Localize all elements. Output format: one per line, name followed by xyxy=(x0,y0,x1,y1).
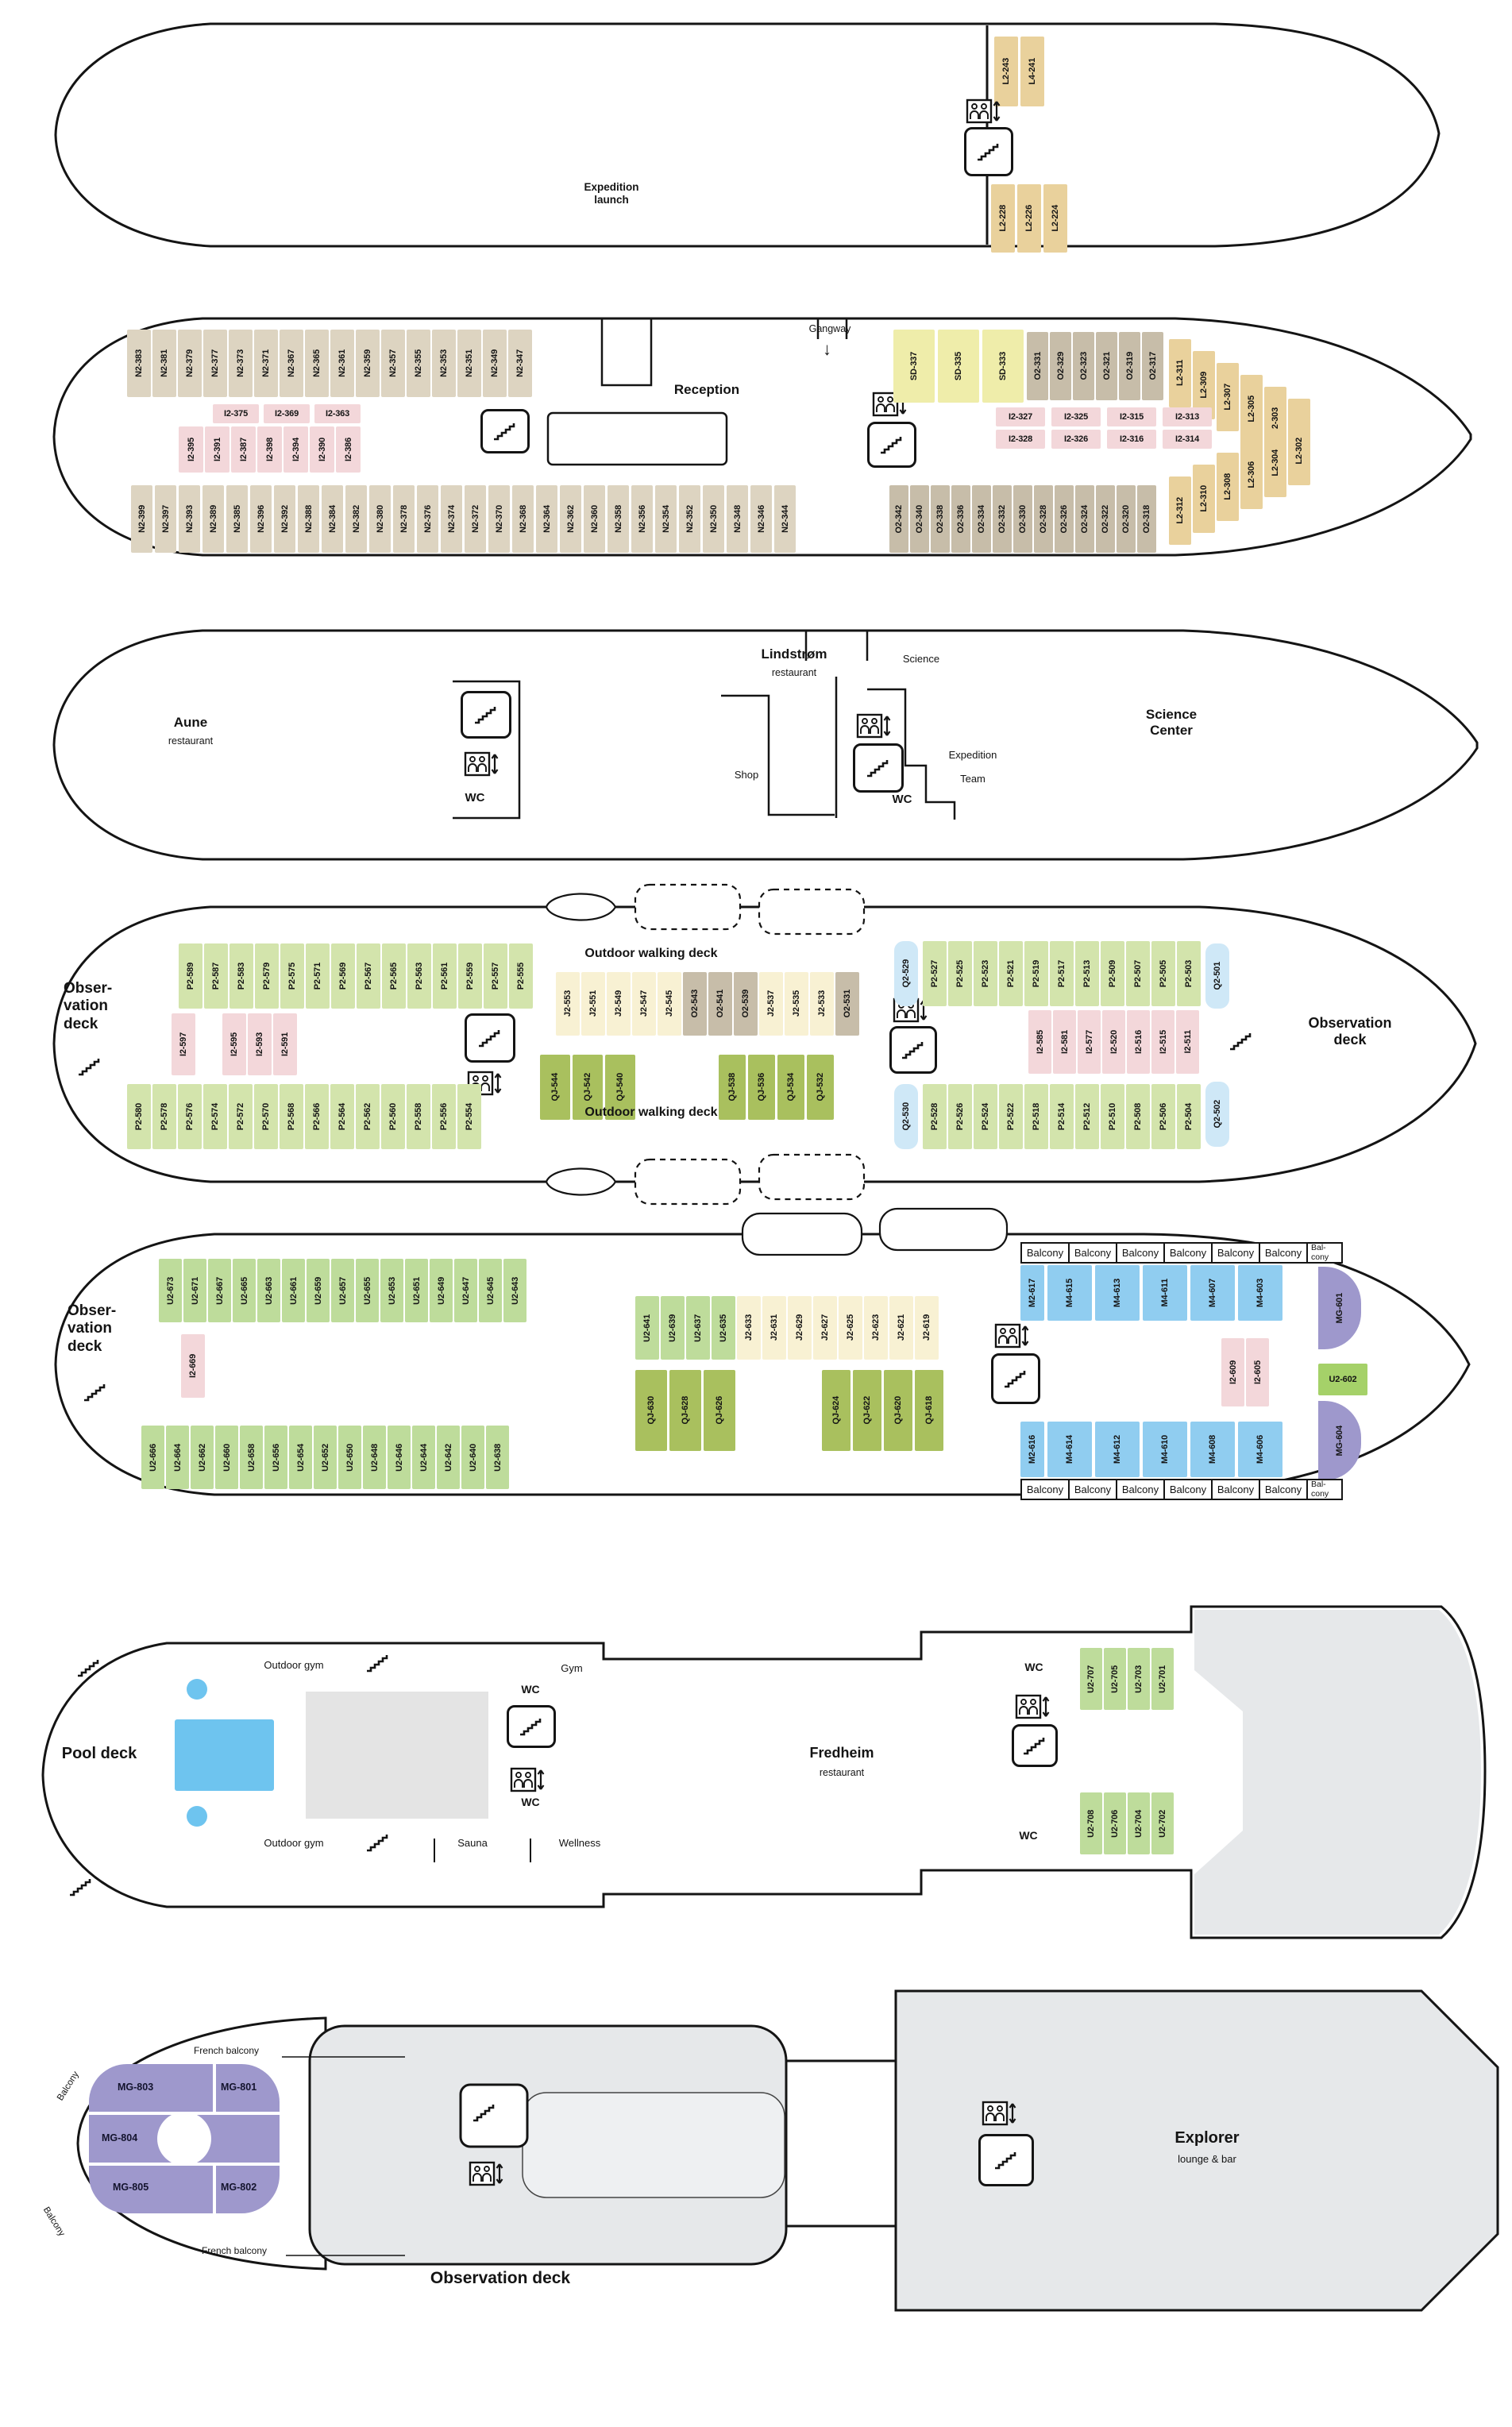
cabin-n2-353[interactable]: N2-353 xyxy=(432,330,456,397)
cabin-u2-661[interactable]: U2-661 xyxy=(282,1259,305,1322)
cabin-i2-581[interactable]: I2-581 xyxy=(1053,1010,1076,1074)
cabin-q2-501[interactable]: Q2-501 xyxy=(1205,943,1229,1009)
cabin-i2-394[interactable]: I2-394 xyxy=(283,426,308,473)
cabin-u2-638[interactable]: U2-638 xyxy=(486,1426,509,1489)
cabin-l2-312[interactable]: L2-312 xyxy=(1169,477,1191,545)
cabin-row-d4-p-rt: P2-527P2-525P2-523P2-521P2-519P2-517P2-5… xyxy=(923,941,1201,1006)
cabin-u2-658[interactable]: U2-658 xyxy=(240,1426,263,1489)
cabin-sd-337[interactable]: SD-337 xyxy=(893,330,935,403)
cabin-n2-377[interactable]: N2-377 xyxy=(203,330,227,397)
cabin-p2-572[interactable]: P2-572 xyxy=(229,1084,253,1149)
cabin-n2-383[interactable]: N2-383 xyxy=(127,330,151,397)
cabin-row-d4-i-trio: I2-595I2-593I2-591 xyxy=(222,1013,297,1075)
cabin-i2-577[interactable]: I2-577 xyxy=(1078,1010,1101,1074)
cabin-p2-576[interactable]: P2-576 xyxy=(178,1084,202,1149)
cabin-p2-578[interactable]: P2-578 xyxy=(152,1084,176,1149)
cabin-i2-328[interactable]: I2-328 xyxy=(996,430,1045,449)
cabin-mg-604[interactable]: MG-604 xyxy=(1318,1401,1361,1480)
cabin-n2-364[interactable]: N2-364 xyxy=(536,485,557,553)
deck-2: N2-383N2-381N2-379N2-377N2-373N2-371N2-3… xyxy=(32,306,1485,568)
cabin-i2-669[interactable]: I2-669 xyxy=(181,1334,205,1398)
cabin-o2-334[interactable]: O2-334 xyxy=(972,485,991,553)
pool-deck-label: Pool deck xyxy=(32,1745,167,1764)
cabin-qj-626[interactable]: QJ-626 xyxy=(704,1370,735,1451)
cabin-row-d2-sd: SD-337SD-335SD-333 xyxy=(893,330,1024,403)
cabin-u2-602[interactable]: U2-602 xyxy=(1318,1364,1367,1395)
cabin-n2-350[interactable]: N2-350 xyxy=(703,485,724,553)
reception-label: Reception xyxy=(635,382,778,398)
cabin-j2-547[interactable]: J2-547 xyxy=(632,972,656,1036)
cabin-n2-346[interactable]: N2-346 xyxy=(750,485,772,553)
cabin-n2-379[interactable]: N2-379 xyxy=(178,330,202,397)
cabin-mg-601[interactable]: MG-601 xyxy=(1318,1267,1361,1349)
cabin-u2-705[interactable]: U2-705 xyxy=(1104,1648,1126,1710)
cabin-p2-564[interactable]: P2-564 xyxy=(330,1084,354,1149)
cabin-u2-657[interactable]: U2-657 xyxy=(331,1259,354,1322)
cabin-m2-616[interactable]: M2-616 xyxy=(1020,1422,1044,1477)
cabin-j2-535[interactable]: J2-535 xyxy=(785,972,808,1036)
cabin-j2-551[interactable]: J2-551 xyxy=(581,972,605,1036)
stairs-icon xyxy=(889,1026,937,1074)
cabin-i2-511[interactable]: I2-511 xyxy=(1176,1010,1199,1074)
cabin-o2-330[interactable]: O2-330 xyxy=(1013,485,1032,553)
cabin-u2-701[interactable]: U2-701 xyxy=(1151,1648,1174,1710)
french-balcony-bottom: French balcony xyxy=(175,2245,294,2256)
cabin-i2-369[interactable]: I2-369 xyxy=(264,404,310,423)
hot-tub xyxy=(187,1679,207,1700)
cabin-u2-637[interactable]: U2-637 xyxy=(686,1296,710,1360)
cabin-j2-633[interactable]: J2-633 xyxy=(737,1296,761,1360)
aune-sub: restaurant xyxy=(135,735,246,747)
cabin-n2-344[interactable]: N2-344 xyxy=(774,485,796,553)
cabin-p2-525[interactable]: P2-525 xyxy=(948,941,972,1006)
cabin-o2-329[interactable]: O2-329 xyxy=(1050,332,1071,400)
cabin-u2-707[interactable]: U2-707 xyxy=(1080,1648,1102,1710)
cabin-p2-568[interactable]: P2-568 xyxy=(280,1084,303,1149)
cabin-p2-556[interactable]: P2-556 xyxy=(432,1084,456,1149)
cabin-i2-325[interactable]: I2-325 xyxy=(1051,407,1101,426)
cabin-n2-389[interactable]: N2-389 xyxy=(202,485,224,553)
cabin-i2-515[interactable]: I2-515 xyxy=(1151,1010,1174,1074)
cabin-o2-342[interactable]: O2-342 xyxy=(889,485,908,553)
cabin-mg-805[interactable]: MG-805 xyxy=(113,2182,148,2193)
cabin-m4-606[interactable]: M4-606 xyxy=(1238,1422,1282,1477)
cabin-mg-804[interactable]: MG-804 xyxy=(102,2132,137,2143)
cabin-mg-802[interactable]: MG-802 xyxy=(221,2182,256,2193)
cabin-u2-641[interactable]: U2-641 xyxy=(635,1296,659,1360)
cabin-d4-q2-529: Q2-529 xyxy=(894,941,918,1006)
cabin-m4-614[interactable]: M4-614 xyxy=(1047,1422,1092,1477)
cabin-p2-517[interactable]: P2-517 xyxy=(1050,941,1074,1006)
gangway-label: Gangway xyxy=(790,323,870,334)
cabin-p2-570[interactable]: P2-570 xyxy=(254,1084,278,1149)
science-center-label: Science Center xyxy=(1104,707,1239,739)
cabin-m4-613[interactable]: M4-613 xyxy=(1095,1265,1140,1321)
cabin-o2-539[interactable]: O2-539 xyxy=(734,972,758,1036)
cabin-n2-368[interactable]: N2-368 xyxy=(512,485,534,553)
cabin-p2-527[interactable]: P2-527 xyxy=(923,941,947,1006)
cabin-j2-627[interactable]: J2-627 xyxy=(813,1296,837,1360)
cabin-m4-603[interactable]: M4-603 xyxy=(1238,1265,1282,1321)
cabin-n2-378[interactable]: N2-378 xyxy=(393,485,415,553)
cabin-p2-519[interactable]: P2-519 xyxy=(1024,941,1048,1006)
cabin-sd-335[interactable]: SD-335 xyxy=(938,330,979,403)
cabin-i2-395[interactable]: I2-395 xyxy=(179,426,203,473)
cabin-p2-512[interactable]: P2-512 xyxy=(1075,1084,1099,1149)
cabin-row-d2-o-bot: O2-342O2-340O2-338O2-336O2-334O2-332O2-3… xyxy=(889,485,1156,553)
cabin-o2-531[interactable]: O2-531 xyxy=(835,972,859,1036)
cabin-qj-534[interactable]: QJ-534 xyxy=(777,1055,804,1120)
cabin-u2-703[interactable]: U2-703 xyxy=(1128,1648,1150,1710)
cabin-n2-380[interactable]: N2-380 xyxy=(369,485,391,553)
cabin-p2-562[interactable]: P2-562 xyxy=(356,1084,380,1149)
cabin-n2-358[interactable]: N2-358 xyxy=(607,485,629,553)
cabin-p2-575[interactable]: P2-575 xyxy=(280,943,304,1009)
cabin-i2-593[interactable]: I2-593 xyxy=(248,1013,272,1075)
cabin-u2-666[interactable]: U2-666 xyxy=(141,1426,164,1489)
cabin-n2-365[interactable]: N2-365 xyxy=(305,330,329,397)
cabin-p2-565[interactable]: P2-565 xyxy=(382,943,406,1009)
cabin-qj-532[interactable]: QJ-532 xyxy=(807,1055,834,1120)
fredheim-label: Fredheim xyxy=(770,1745,913,1761)
cabin-row-d6-u-bot: U2-708U2-706U2-704U2-702 xyxy=(1080,1792,1174,1854)
cabin-i2-595[interactable]: I2-595 xyxy=(222,1013,246,1075)
cabin-o2-324[interactable]: O2-324 xyxy=(1075,485,1094,553)
cabin-u2-659[interactable]: U2-659 xyxy=(307,1259,330,1322)
cabin-i2-520[interactable]: I2-520 xyxy=(1102,1010,1125,1074)
cabin-p2-509[interactable]: P2-509 xyxy=(1101,941,1124,1006)
balcony-label: Balcony xyxy=(1259,1242,1308,1264)
cabin-o2-321[interactable]: O2-321 xyxy=(1096,332,1117,400)
wc-label: WC xyxy=(507,1683,554,1696)
cabin-l2-304[interactable]: L2-304 xyxy=(1264,429,1286,497)
cabin-l2-308[interactable]: L2-308 xyxy=(1217,453,1239,521)
cabin-j2-533[interactable]: J2-533 xyxy=(810,972,834,1036)
cabin-o2-340[interactable]: O2-340 xyxy=(910,485,929,553)
cabin-p2-524[interactable]: P2-524 xyxy=(974,1084,997,1149)
stairs-icon xyxy=(991,1353,1040,1404)
cabin-u2-653[interactable]: U2-653 xyxy=(380,1259,403,1322)
cabin-o2-318[interactable]: O2-318 xyxy=(1137,485,1156,553)
cabin-n2-357[interactable]: N2-357 xyxy=(381,330,405,397)
cabin-o2-541[interactable]: O2-541 xyxy=(708,972,732,1036)
cabin-j2-629[interactable]: J2-629 xyxy=(788,1296,812,1360)
cabin-row-d2-l-bot: L2-312L2-310L2-308L2-306L2-304L2-302 xyxy=(1169,417,1310,545)
cabin-d4-q2-501: Q2-501 xyxy=(1205,943,1229,1009)
cabin-p2-567[interactable]: P2-567 xyxy=(357,943,380,1009)
cabin-u2-663[interactable]: U2-663 xyxy=(257,1259,280,1322)
cabin-u2-667[interactable]: U2-667 xyxy=(208,1259,231,1322)
cabin-u2-654[interactable]: U2-654 xyxy=(289,1426,312,1489)
cabin-p2-569[interactable]: P2-569 xyxy=(331,943,355,1009)
cabin-m2-617[interactable]: M2-617 xyxy=(1020,1265,1044,1321)
cabin-p2-504[interactable]: P2-504 xyxy=(1177,1084,1201,1149)
cabin-o2-332[interactable]: O2-332 xyxy=(993,485,1012,553)
elevator-icon xyxy=(1015,1694,1051,1719)
cabin-n2-392[interactable]: N2-392 xyxy=(274,485,295,553)
cabin-i2-387[interactable]: I2-387 xyxy=(231,426,256,473)
cabin-j2-625[interactable]: J2-625 xyxy=(839,1296,862,1360)
cabin-u2-650[interactable]: U2-650 xyxy=(338,1426,361,1489)
cabin-p2-513[interactable]: P2-513 xyxy=(1075,941,1099,1006)
stairs-icon xyxy=(75,1056,104,1077)
cabin-n2-370[interactable]: N2-370 xyxy=(488,485,510,553)
cabin-d5-u2-602: U2-602 xyxy=(1318,1364,1367,1395)
elevator-icon xyxy=(464,751,500,777)
cabin-p2-554[interactable]: P2-554 xyxy=(457,1084,481,1149)
cabin-p2-557[interactable]: P2-557 xyxy=(484,943,507,1009)
cabin-j2-553[interactable]: J2-553 xyxy=(556,972,580,1036)
cabin-p2-579[interactable]: P2-579 xyxy=(255,943,279,1009)
pool xyxy=(175,1719,274,1791)
cabin-sd-333[interactable]: SD-333 xyxy=(982,330,1024,403)
cabin-o2-320[interactable]: O2-320 xyxy=(1117,485,1136,553)
cabin-i2-315[interactable]: I2-315 xyxy=(1107,407,1156,426)
cabin-n2-397[interactable]: N2-397 xyxy=(155,485,176,553)
cabin-u2-656[interactable]: U2-656 xyxy=(264,1426,287,1489)
cabin-qj-618[interactable]: QJ-618 xyxy=(915,1370,943,1451)
cabin-j2-631[interactable]: J2-631 xyxy=(762,1296,786,1360)
cabin-n2-385[interactable]: N2-385 xyxy=(226,485,248,553)
cabin-l2-306[interactable]: L2-306 xyxy=(1240,441,1263,509)
cabin-o2-338[interactable]: O2-338 xyxy=(931,485,950,553)
cabin-p2-510[interactable]: P2-510 xyxy=(1101,1084,1124,1149)
cabin-p2-503[interactable]: P2-503 xyxy=(1177,941,1201,1006)
cabin-n2-399[interactable]: N2-399 xyxy=(131,485,152,553)
cabin-p2-558[interactable]: P2-558 xyxy=(407,1084,430,1149)
cabin-j2-537[interactable]: J2-537 xyxy=(759,972,783,1036)
cabin-u2-655[interactable]: U2-655 xyxy=(356,1259,379,1322)
elevator-icon xyxy=(966,98,1002,124)
cabin-u2-660[interactable]: U2-660 xyxy=(215,1426,238,1489)
cabin-u2-639[interactable]: U2-639 xyxy=(661,1296,685,1360)
cabin-l2-228[interactable]: L2-228 xyxy=(991,184,1015,253)
cabin-p2-559[interactable]: P2-559 xyxy=(458,943,482,1009)
cabin-q2-530[interactable]: Q2-530 xyxy=(894,1084,918,1149)
cabin-o2-317[interactable]: O2-317 xyxy=(1142,332,1163,400)
cabin-n2-374[interactable]: N2-374 xyxy=(441,485,462,553)
balcony-label: Balcony xyxy=(1020,1242,1070,1264)
cabin-u2-647[interactable]: U2-647 xyxy=(454,1259,477,1322)
cabin-p2-514[interactable]: P2-514 xyxy=(1050,1084,1074,1149)
cabin-p2-526[interactable]: P2-526 xyxy=(948,1084,972,1149)
outdoor-walking-deck-top: Outdoor walking deck xyxy=(524,947,778,962)
cabin-p2-563[interactable]: P2-563 xyxy=(407,943,431,1009)
cabin-i2-375[interactable]: I2-375 xyxy=(213,404,259,423)
cabin-p2-571[interactable]: P2-571 xyxy=(306,943,330,1009)
deck-7: Balcony Balcony French balcony French ba… xyxy=(32,1981,1501,2331)
cabin-o2-319[interactable]: O2-319 xyxy=(1119,332,1140,400)
cabin-i2-363[interactable]: I2-363 xyxy=(314,404,361,423)
balcony-label: Balcony xyxy=(1116,1242,1165,1264)
cabin-o2-322[interactable]: O2-322 xyxy=(1096,485,1115,553)
cabin-i2-516[interactable]: I2-516 xyxy=(1127,1010,1150,1074)
cabin-m4-612[interactable]: M4-612 xyxy=(1095,1422,1140,1477)
cabin-n2-352[interactable]: N2-352 xyxy=(679,485,700,553)
cabin-i2-390[interactable]: I2-390 xyxy=(310,426,334,473)
cabin-u2-706[interactable]: U2-706 xyxy=(1104,1792,1126,1854)
stairs-icon xyxy=(470,2102,499,2123)
cabin-p2-589[interactable]: P2-589 xyxy=(179,943,202,1009)
cabin-i2-398[interactable]: I2-398 xyxy=(257,426,282,473)
cabin-qj-622[interactable]: QJ-622 xyxy=(853,1370,881,1451)
cabin-j2-623[interactable]: J2-623 xyxy=(864,1296,888,1360)
cabin-n2-372[interactable]: N2-372 xyxy=(465,485,486,553)
cabin-m4-611[interactable]: M4-611 xyxy=(1143,1265,1187,1321)
cabin-n2-359[interactable]: N2-359 xyxy=(356,330,380,397)
cabin-q2-502[interactable]: Q2-502 xyxy=(1205,1082,1229,1147)
cabin-qj-630[interactable]: QJ-630 xyxy=(635,1370,667,1451)
cabin-l2-302[interactable]: L2-302 xyxy=(1288,417,1310,485)
cabin-qj-624[interactable]: QJ-624 xyxy=(822,1370,850,1451)
cabin-u2-652[interactable]: U2-652 xyxy=(314,1426,337,1489)
cabin-n2-360[interactable]: N2-360 xyxy=(584,485,605,553)
cabin-p2-574[interactable]: P2-574 xyxy=(203,1084,227,1149)
cabin-l4-241[interactable]: L4-241 xyxy=(1020,37,1044,106)
wc-label: WC xyxy=(1005,1829,1052,1842)
cabin-u2-645[interactable]: U2-645 xyxy=(479,1259,502,1322)
observation-deck-label: Observation deck xyxy=(373,2269,627,2289)
cabin-u2-642[interactable]: U2-642 xyxy=(437,1426,460,1489)
cabin-j2-549[interactable]: J2-549 xyxy=(607,972,631,1036)
cabin-n2-388[interactable]: N2-388 xyxy=(298,485,319,553)
deck-1: Expedition launch L2-243L4-241 L2-228L2-… xyxy=(32,16,1461,254)
cabin-m4-607[interactable]: M4-607 xyxy=(1190,1265,1235,1321)
cabin-p2-587[interactable]: P2-587 xyxy=(204,943,228,1009)
cabin-o2-543[interactable]: O2-543 xyxy=(683,972,707,1036)
cabin-o2-331[interactable]: O2-331 xyxy=(1027,332,1048,400)
cabin-u2-651[interactable]: U2-651 xyxy=(405,1259,428,1322)
cabin-n2-351[interactable]: N2-351 xyxy=(457,330,481,397)
cabin-row-d6-u-top: U2-707U2-705U2-703U2-701 xyxy=(1080,1648,1174,1710)
cabin-n2-382[interactable]: N2-382 xyxy=(345,485,367,553)
cabin-n2-355[interactable]: N2-355 xyxy=(407,330,430,397)
cabin-n2-348[interactable]: N2-348 xyxy=(727,485,748,553)
stairs-icon xyxy=(867,422,916,468)
cabin-row-d5-qj-a: QJ-630QJ-628QJ-626 xyxy=(635,1370,735,1451)
cabin-u2-671[interactable]: U2-671 xyxy=(183,1259,206,1322)
stairs-icon xyxy=(480,409,530,453)
cabin-i2-605[interactable]: I2-605 xyxy=(1246,1338,1269,1406)
cabin-row-d4-p-top: P2-589P2-587P2-583P2-579P2-575P2-571P2-5… xyxy=(179,943,533,1009)
cabin-n2-373[interactable]: N2-373 xyxy=(229,330,253,397)
cabin-i2-597[interactable]: I2-597 xyxy=(172,1013,195,1075)
cabin-qj-620[interactable]: QJ-620 xyxy=(884,1370,912,1451)
cabin-p2-528[interactable]: P2-528 xyxy=(923,1084,947,1149)
cabin-n2-356[interactable]: N2-356 xyxy=(631,485,653,553)
cabin-n2-354[interactable]: N2-354 xyxy=(655,485,677,553)
cabin-i2-609[interactable]: I2-609 xyxy=(1221,1338,1244,1406)
cabin-p2-505[interactable]: P2-505 xyxy=(1151,941,1175,1006)
cabin-p2-521[interactable]: P2-521 xyxy=(999,941,1023,1006)
cabin-n2-376[interactable]: N2-376 xyxy=(417,485,438,553)
cabin-p2-508[interactable]: P2-508 xyxy=(1126,1084,1150,1149)
cabin-p2-560[interactable]: P2-560 xyxy=(381,1084,405,1149)
cabin-l2-226[interactable]: L2-226 xyxy=(1017,184,1041,253)
cabin-n2-361[interactable]: N2-361 xyxy=(330,330,354,397)
cabin-u2-648[interactable]: U2-648 xyxy=(363,1426,386,1489)
cabin-u2-635[interactable]: U2-635 xyxy=(712,1296,735,1360)
cabin-u2-708[interactable]: U2-708 xyxy=(1080,1792,1102,1854)
balcony-row-bottom: BalconyBalconyBalconyBalconyBalconyBalco… xyxy=(1020,1479,1341,1500)
cabin-u2-673[interactable]: U2-673 xyxy=(159,1259,182,1322)
cabin-p2-523[interactable]: P2-523 xyxy=(974,941,997,1006)
lindstrom-sub: restaurant xyxy=(731,667,858,678)
cabin-o2-326[interactable]: O2-326 xyxy=(1055,485,1074,553)
cabin-mg-801[interactable]: MG-801 xyxy=(221,2082,256,2093)
cabin-n2-367[interactable]: N2-367 xyxy=(280,330,303,397)
cabin-n2-371[interactable]: N2-371 xyxy=(254,330,278,397)
cabin-i2-386[interactable]: I2-386 xyxy=(336,426,361,473)
explorer-label: Explorer xyxy=(1112,2129,1302,2148)
cabin-n2-396[interactable]: N2-396 xyxy=(250,485,272,553)
cabin-n2-393[interactable]: N2-393 xyxy=(179,485,200,553)
cabin-u2-665[interactable]: U2-665 xyxy=(233,1259,256,1322)
cabin-n2-347[interactable]: N2-347 xyxy=(508,330,532,397)
cabin-i2-316[interactable]: I2-316 xyxy=(1107,430,1156,449)
cabin-p2-507[interactable]: P2-507 xyxy=(1126,941,1150,1006)
balcony-label: Balcony xyxy=(1163,1479,1213,1500)
cabin-l2-224[interactable]: L2-224 xyxy=(1043,184,1067,253)
cabin-u2-640[interactable]: U2-640 xyxy=(461,1426,484,1489)
cabin-j2-545[interactable]: J2-545 xyxy=(658,972,681,1036)
cabin-p2-583[interactable]: P2-583 xyxy=(229,943,253,1009)
cabin-l2-311[interactable]: L2-311 xyxy=(1169,339,1191,407)
cabin-m4-608[interactable]: M4-608 xyxy=(1190,1422,1235,1477)
cabin-u2-704[interactable]: U2-704 xyxy=(1128,1792,1150,1854)
cabin-i2-585[interactable]: I2-585 xyxy=(1028,1010,1051,1074)
cabin-d5-mg-604: MG-604 xyxy=(1318,1401,1361,1480)
cabin-i2-326[interactable]: I2-326 xyxy=(1051,430,1101,449)
cabin-n2-384[interactable]: N2-384 xyxy=(322,485,343,553)
cabin-j2-619[interactable]: J2-619 xyxy=(915,1296,939,1360)
cabin-i2-391[interactable]: I2-391 xyxy=(205,426,229,473)
cabin-qj-628[interactable]: QJ-628 xyxy=(669,1370,701,1451)
cabin-p2-580[interactable]: P2-580 xyxy=(127,1084,151,1149)
cabin-u2-664[interactable]: U2-664 xyxy=(166,1426,189,1489)
cabin-mg-803[interactable]: MG-803 xyxy=(118,2082,153,2093)
cabin-m4-615[interactable]: M4-615 xyxy=(1047,1265,1092,1321)
cabin-row-d5-qj-b: QJ-624QJ-622QJ-620QJ-618 xyxy=(822,1370,943,1451)
cabin-p2-561[interactable]: P2-561 xyxy=(433,943,457,1009)
cabin-p2-566[interactable]: P2-566 xyxy=(305,1084,329,1149)
cabin-p2-522[interactable]: P2-522 xyxy=(999,1084,1023,1149)
cabin-u2-662[interactable]: U2-662 xyxy=(191,1426,214,1489)
cabin-u2-649[interactable]: U2-649 xyxy=(430,1259,453,1322)
cabin-l2-243[interactable]: L2-243 xyxy=(994,37,1018,106)
cabin-i2-327[interactable]: I2-327 xyxy=(996,407,1045,426)
explorer-sub: lounge & bar xyxy=(1112,2153,1302,2165)
cabin-n2-362[interactable]: N2-362 xyxy=(560,485,581,553)
cabin-row-d1-fwd: L2-243L4-241 xyxy=(994,37,1044,106)
cabin-m4-610[interactable]: M4-610 xyxy=(1143,1422,1187,1477)
cabin-o2-328[interactable]: O2-328 xyxy=(1034,485,1053,553)
cabin-o2-323[interactable]: O2-323 xyxy=(1073,332,1094,400)
cabin-u2-644[interactable]: U2-644 xyxy=(412,1426,435,1489)
cabin-n2-349[interactable]: N2-349 xyxy=(483,330,507,397)
cabin-p2-518[interactable]: P2-518 xyxy=(1024,1084,1048,1149)
cabin-n2-381[interactable]: N2-381 xyxy=(152,330,176,397)
cabin-j2-621[interactable]: J2-621 xyxy=(889,1296,913,1360)
cabin-q2-529[interactable]: Q2-529 xyxy=(894,941,918,1006)
cabin-l2-310[interactable]: L2-310 xyxy=(1193,465,1215,533)
cabin-i2-591[interactable]: I2-591 xyxy=(273,1013,297,1075)
cabin-p2-506[interactable]: P2-506 xyxy=(1151,1084,1175,1149)
cabin-o2-336[interactable]: O2-336 xyxy=(951,485,970,553)
cabin-u2-702[interactable]: U2-702 xyxy=(1151,1792,1174,1854)
cabin-u2-646[interactable]: U2-646 xyxy=(388,1426,411,1489)
cabin-u2-643[interactable]: U2-643 xyxy=(503,1259,526,1322)
